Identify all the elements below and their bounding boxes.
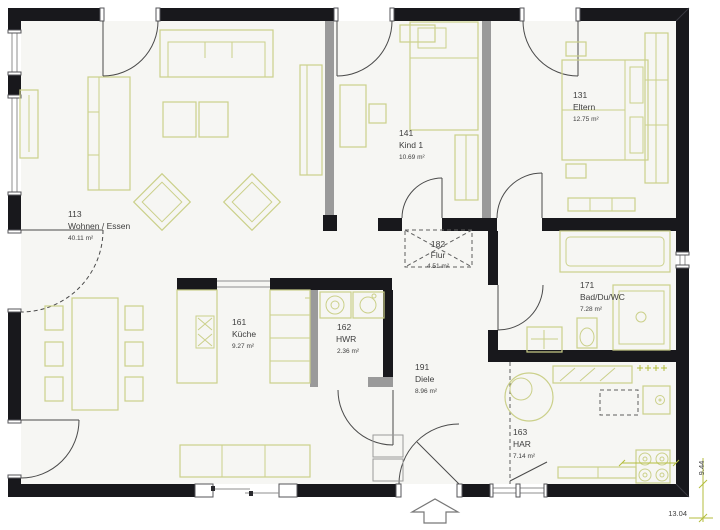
svg-text:131: 131 <box>573 90 587 100</box>
wall-hwr-left <box>310 290 318 387</box>
svg-text:191: 191 <box>415 362 429 372</box>
terrace-door-top-2 <box>334 8 394 21</box>
window-right-bad <box>676 252 689 268</box>
svg-text:Flur: Flur <box>431 250 446 260</box>
wall-diele-bad <box>488 231 498 285</box>
svg-text:12.75 m²: 12.75 m² <box>573 116 599 123</box>
window-bottom-har <box>490 484 547 497</box>
svg-text:4.51 m²: 4.51 m² <box>427 263 450 270</box>
wall-bad-har <box>488 350 676 362</box>
entrance-arrow-icon <box>412 499 458 523</box>
svg-text:162: 162 <box>337 322 351 332</box>
svg-text:163: 163 <box>513 427 527 437</box>
svg-text:40.11 m²: 40.11 m² <box>68 235 94 242</box>
svg-text:Wohnen / Essen: Wohnen / Essen <box>68 221 130 231</box>
svg-text:7.28 m²: 7.28 m² <box>580 306 603 313</box>
window-left-mid <box>8 95 21 195</box>
svg-text:Küche: Küche <box>232 329 256 339</box>
svg-text:9.27 m²: 9.27 m² <box>232 343 255 350</box>
svg-text:2.36 m²: 2.36 m² <box>337 348 360 355</box>
svg-text:Diele: Diele <box>415 374 435 384</box>
svg-text:10.69 m²: 10.69 m² <box>399 154 425 161</box>
terrace-door-top-3 <box>520 8 580 21</box>
svg-text:171: 171 <box>580 280 594 290</box>
floor-plan-svg: 113 Wohnen / Essen 40.11 m² 141 Kind 1 1… <box>0 0 720 530</box>
terrace-door-top-1 <box>100 8 160 21</box>
svg-text:Kind 1: Kind 1 <box>399 140 423 150</box>
wall-kind1-eltern <box>482 21 491 218</box>
svg-text:HAR: HAR <box>513 439 531 449</box>
svg-text:8.96 m²: 8.96 m² <box>415 388 438 395</box>
svg-text:7.14 m²: 7.14 m² <box>513 453 536 460</box>
opening-left-terrace <box>8 230 21 312</box>
svg-text:HWR: HWR <box>336 334 356 344</box>
floor-area <box>8 8 689 497</box>
svg-text:113: 113 <box>68 209 82 219</box>
door-left-bottom-opening <box>8 420 21 478</box>
svg-text:Eltern: Eltern <box>573 102 595 112</box>
svg-text:141: 141 <box>399 128 413 138</box>
sliding-terrace-door <box>195 484 297 497</box>
dim-height: 9.44 <box>697 461 706 476</box>
svg-text:161: 161 <box>232 317 246 327</box>
floor-plan: 113 Wohnen / Essen 40.11 m² 141 Kind 1 1… <box>0 0 720 530</box>
wall-kueche <box>177 278 217 290</box>
wall-wohnen-kind1 <box>325 21 334 215</box>
entrance-door-opening <box>396 484 462 497</box>
svg-text:Bad/Du/WC: Bad/Du/WC <box>580 292 625 302</box>
window-left-top <box>8 30 21 75</box>
svg-text:182: 182 <box>431 239 445 249</box>
dim-width: 13.04 <box>668 509 687 518</box>
